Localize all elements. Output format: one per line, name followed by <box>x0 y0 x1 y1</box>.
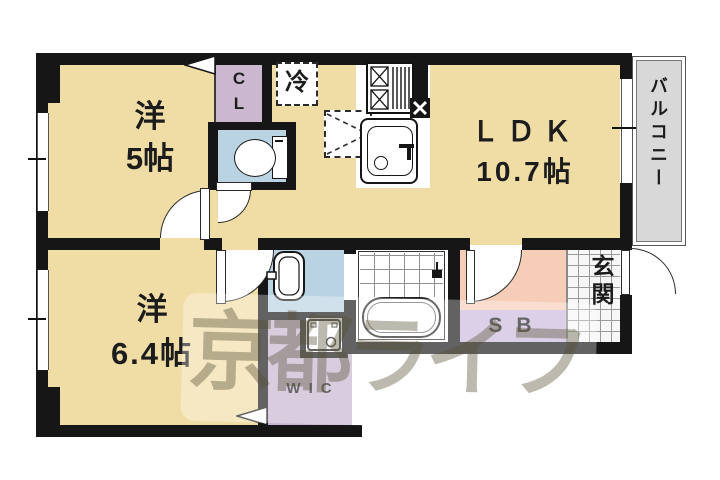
wall-kitchen-stub <box>412 57 428 99</box>
floor-plan: 冷 洋 5帖 ＬＤＫ 10.7帖 洋 6.4帖 バルコニー 玄関 SB C <box>0 0 720 480</box>
wall-toilet-bottom-b <box>250 182 296 190</box>
watermark: 京都ライフ <box>180 293 597 432</box>
door-leaf-room5 <box>200 188 210 240</box>
wall-corner-tl <box>36 53 60 103</box>
balcony-label: バルコニー <box>645 76 671 236</box>
wall-right-upper <box>620 53 632 79</box>
folding-door-triangle-cl <box>184 55 216 75</box>
ldk-size: 10.7帖 <box>420 152 630 192</box>
closet-line1: C <box>216 66 262 91</box>
wall-entrance-right <box>620 295 632 354</box>
room5-name: 洋 <box>70 96 230 138</box>
window-left-upper-tick <box>28 158 46 160</box>
bath-faucet-stem <box>436 262 438 272</box>
wall-cl-right <box>262 57 272 122</box>
toilet-icon <box>234 139 276 177</box>
door-leaf-toilet <box>216 182 252 191</box>
closet-line2: L <box>216 91 262 116</box>
window-left-upper <box>37 113 49 211</box>
refrigerator-space: 冷 <box>276 62 318 106</box>
door-leaf-hall <box>466 250 475 304</box>
wall-top <box>36 53 632 65</box>
room5-label: 洋 5帖 <box>70 96 230 180</box>
refrigerator-label: 冷 <box>285 69 309 96</box>
wall-mid-h2 <box>258 238 470 250</box>
kitchen-sink-icon <box>360 118 418 184</box>
ldk-label: ＬＤＫ 10.7帖 <box>420 112 630 192</box>
window-left-lower <box>37 270 49 370</box>
gas-stove-icon <box>366 62 414 114</box>
bath-sliding-door <box>345 254 355 300</box>
door-leaf-entrance <box>621 250 630 295</box>
bathroom-tile-floor <box>360 253 443 297</box>
ldk-name: ＬＤＫ <box>420 112 630 152</box>
wall-mid-h3 <box>522 238 632 250</box>
room5-size: 5帖 <box>70 138 230 180</box>
wall-bottom-left <box>36 425 362 437</box>
closet-label: C L <box>216 66 262 116</box>
wall-mid-h1 <box>36 238 160 250</box>
door-arc-entrance <box>630 248 676 294</box>
wall-bath-left-a <box>344 238 356 254</box>
window-left-lower-tick <box>28 318 46 320</box>
